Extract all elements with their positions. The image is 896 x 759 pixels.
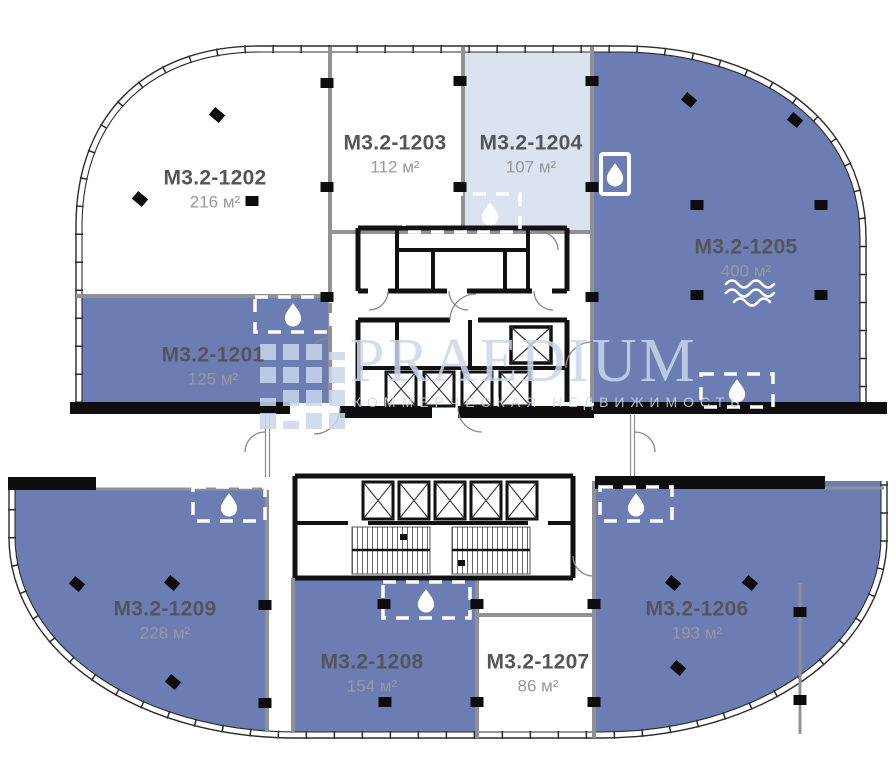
unit-label-m3-2-1205[interactable]: M3.2-1205 400 м²	[694, 233, 797, 282]
floor-plan: PRAEDIUM КОММЕРЧЕСКАЯ НЕДВИЖИМОСТЬ M3.2-…	[0, 0, 896, 759]
unit-id: M3.2-1205	[694, 233, 797, 260]
unit-id: M3.2-1202	[163, 164, 266, 191]
unit-area: 112 м²	[343, 157, 446, 179]
unit-label-m3-2-1207[interactable]: M3.2-1207 86 м²	[486, 648, 589, 697]
unit-area: 125 м²	[161, 369, 264, 391]
unit-id: M3.2-1207	[486, 648, 589, 675]
unit-label-m3-2-1206[interactable]: M3.2-1206 193 м²	[645, 595, 748, 644]
unit-area: 107 м²	[479, 157, 582, 179]
unit-id: M3.2-1204	[479, 129, 582, 156]
unit-area: 86 м²	[486, 676, 589, 698]
unit-id: M3.2-1208	[320, 648, 423, 675]
floor-plan-drawing	[0, 0, 896, 759]
unit-area: 193 м²	[645, 623, 748, 645]
unit-area: 216 м²	[163, 192, 266, 214]
stairs	[352, 527, 530, 574]
unit-label-m3-2-1202[interactable]: M3.2-1202 216 м²	[163, 164, 266, 213]
unit-label-m3-2-1204[interactable]: M3.2-1204 107 м²	[479, 129, 582, 178]
unit-area: 228 м²	[113, 623, 216, 645]
unit-id: M3.2-1206	[645, 595, 748, 622]
unit-area: 400 м²	[694, 261, 797, 283]
core-lower	[295, 476, 573, 578]
unit-label-m3-2-1209[interactable]: M3.2-1209 228 м²	[113, 595, 216, 644]
unit-region-m3-2-1205[interactable]	[592, 44, 868, 404]
corridor-walls	[266, 415, 635, 477]
unit-area: 154 м²	[320, 676, 423, 698]
unit-label-m3-2-1208[interactable]: M3.2-1208 154 м²	[320, 648, 423, 697]
unit-id: M3.2-1209	[113, 595, 216, 622]
unit-label-m3-2-1203[interactable]: M3.2-1203 112 м²	[343, 129, 446, 178]
unit-label-m3-2-1201[interactable]: M3.2-1201 125 м²	[161, 341, 264, 390]
core-upper	[358, 228, 567, 406]
unit-id: M3.2-1201	[161, 341, 264, 368]
unit-id: M3.2-1203	[343, 129, 446, 156]
